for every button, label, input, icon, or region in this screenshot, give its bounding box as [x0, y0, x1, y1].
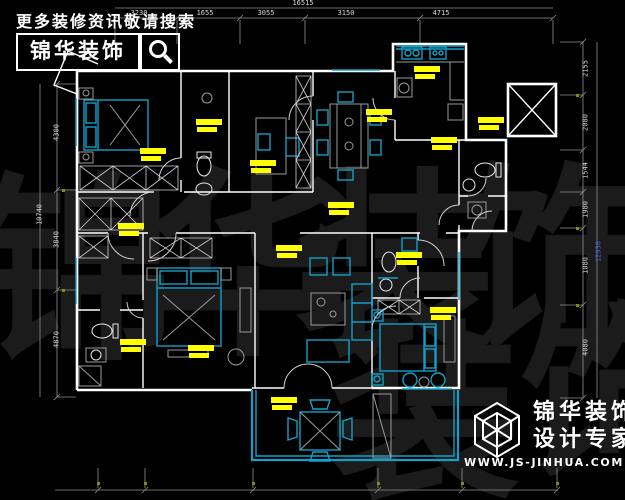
dim-right-total: 12930: [596, 235, 603, 269]
dim-top-segment: 1655: [188, 10, 222, 17]
highlight-marker: [396, 252, 422, 265]
footer-website[interactable]: WWW.JS-JINHUA.COM: [464, 456, 624, 469]
dim-right-segment: 4080: [583, 331, 590, 365]
floorplan-drawing: [0, 0, 625, 500]
wardrobe: [296, 76, 311, 188]
highlight-marker: [188, 345, 214, 358]
sofa: [352, 284, 372, 340]
bedroom-topleft: [79, 88, 178, 190]
coffee-table: [311, 293, 345, 325]
toilet: [475, 163, 495, 177]
patio-table: [419, 377, 429, 387]
kitchen: [396, 47, 464, 120]
highlight-marker: [414, 66, 440, 79]
dim-right-segment: 1980: [583, 193, 590, 227]
brand-box[interactable]: 锦华装饰: [16, 33, 140, 71]
elevator-shaft: [508, 84, 556, 136]
footer-brand-line2: 设计专家: [533, 429, 625, 451]
sink: [196, 183, 212, 195]
floorplan-canvas: 锦 华 装 饰 装 饰: [0, 0, 625, 500]
highlight-marker: [196, 119, 222, 132]
dim-right-segment: 1544: [583, 154, 590, 188]
dim-top-segment: 3230: [122, 10, 156, 17]
wardrobe: [150, 238, 212, 258]
bathroom-top: [196, 93, 212, 195]
header-tagline: 更多装修资讯敬请搜索: [16, 8, 196, 32]
footer-brand-line1: 锦华装饰: [533, 402, 625, 424]
armchair: [310, 258, 327, 275]
dim-top-segment: 3055: [249, 10, 283, 17]
bed: [380, 324, 436, 371]
highlight-marker: [431, 137, 457, 150]
dim-top-total: 16515: [283, 0, 323, 7]
sink: [91, 350, 101, 360]
highlight-marker: [250, 160, 276, 173]
toilet: [382, 252, 396, 272]
dim-top-segment: 4715: [424, 10, 458, 17]
dresser: [240, 288, 251, 332]
dim-left-segment: 4300: [54, 116, 61, 150]
highlight-marker: [328, 202, 354, 215]
toilet: [197, 156, 211, 176]
sink: [402, 238, 417, 251]
lounge-chair: [307, 340, 349, 362]
chair: [228, 349, 244, 365]
highlight-marker: [478, 117, 504, 130]
dim-left-segment: 4870: [54, 323, 61, 357]
highlight-marker: [366, 109, 392, 122]
highlight-marker: [118, 223, 144, 236]
dresser: [444, 316, 455, 362]
bed: [157, 268, 221, 346]
dim-left-segment: 3840: [54, 223, 61, 257]
sink: [463, 179, 475, 191]
highlight-marker: [276, 245, 302, 258]
footer-logo: [475, 403, 519, 457]
bathroom-guest: [463, 163, 501, 218]
wardrobe: [378, 300, 420, 314]
master-bathroom: [79, 236, 118, 386]
highlight-marker: [120, 339, 146, 352]
fridge: [448, 104, 463, 120]
dim-right-segment: 2080: [583, 106, 590, 140]
chair: [286, 138, 299, 156]
patio-chair: [403, 373, 417, 387]
highlight-marker: [140, 148, 166, 161]
living-room: [307, 258, 372, 362]
dim-right-segment: 1080: [583, 249, 590, 283]
dim-top-segment: 3150: [329, 10, 363, 17]
highlight-marker: [271, 397, 297, 410]
dining-room: [317, 92, 381, 180]
dim-left-total: 10740: [37, 198, 44, 232]
dim-right-segment: 2155: [583, 52, 590, 86]
wardrobe: [80, 166, 178, 190]
armchair: [333, 258, 350, 275]
toilet: [92, 324, 112, 338]
patio-chair: [431, 373, 445, 387]
dining-table: [330, 104, 368, 168]
highlight-marker: [430, 307, 456, 320]
